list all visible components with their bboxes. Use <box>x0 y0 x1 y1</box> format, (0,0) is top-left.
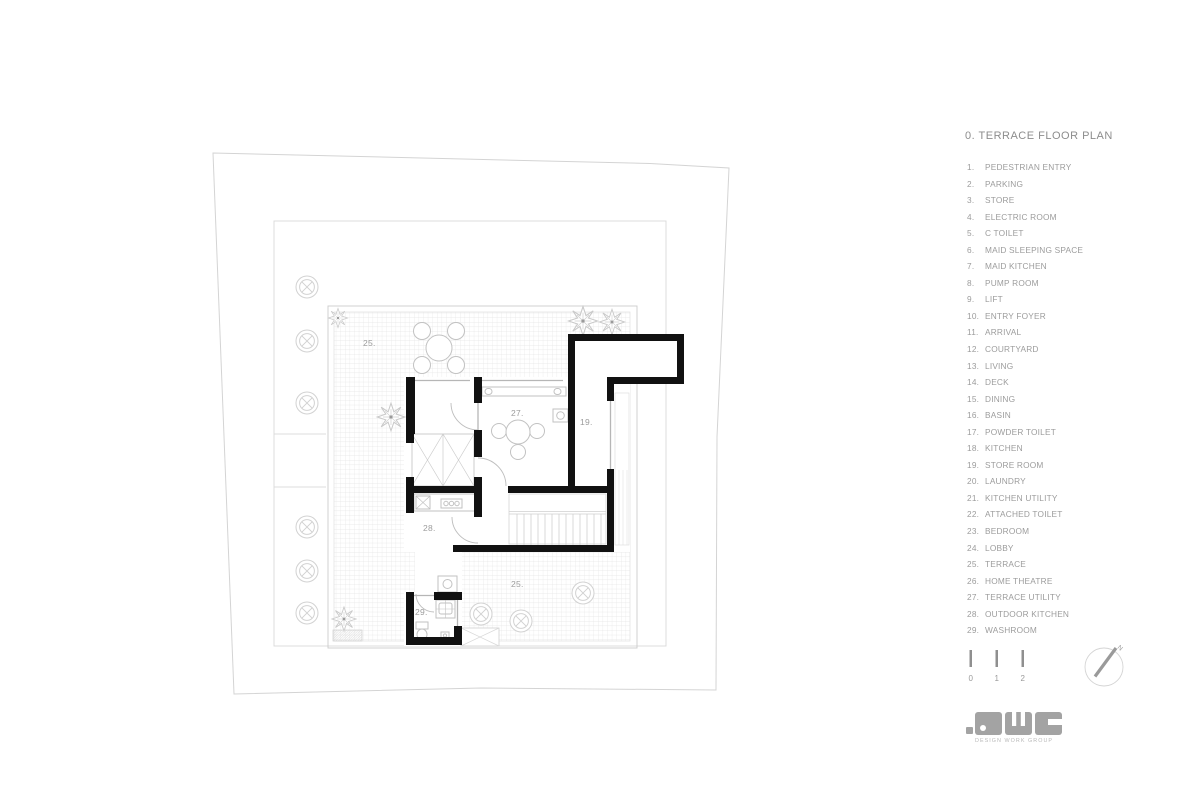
legend-item: 13.LIVING <box>967 361 1083 378</box>
legend-item: 14.DECK <box>967 377 1083 394</box>
north-label: N <box>1116 644 1124 653</box>
label-terrace-utility: 27. <box>511 408 524 418</box>
scale-tick-2: 2 <box>1020 674 1025 683</box>
legend-item: 12.COURTYARD <box>967 344 1083 361</box>
legend-item: 26.HOME THEATRE <box>967 576 1083 593</box>
legend-item: 28.OUTDOOR KITCHEN <box>967 609 1083 626</box>
legend-item: 22.ATTACHED TOILET <box>967 509 1083 526</box>
legend-item: 24.LOBBY <box>967 543 1083 560</box>
north-arrow-icon: N <box>1085 644 1124 686</box>
vent-grille <box>333 630 362 641</box>
legend-item: 2.PARKING <box>967 179 1083 196</box>
legend-item: 7.MAID KITCHEN <box>967 261 1083 278</box>
logo-subtitle: DESIGN WORK GROUP <box>975 738 1053 744</box>
page-title: 0. TERRACE FLOOR PLAN <box>965 130 1113 142</box>
legend-item: 5.C TOILET <box>967 228 1083 245</box>
legend-item: 19.STORE ROOM <box>967 460 1083 477</box>
legend-item: 20.LAUNDRY <box>967 476 1083 493</box>
legend-item: 11.ARRIVAL <box>967 327 1083 344</box>
drawing-sheet: 25. 27. 19. 28. 25. 29. 0 1 2 N DESIGN W… <box>0 0 1200 800</box>
legend-item: 1.PEDESTRIAN ENTRY <box>967 162 1083 179</box>
legend-item: 8.PUMP ROOM <box>967 278 1083 295</box>
legend-item: 21.KITCHEN UTILITY <box>967 493 1083 510</box>
legend-item: 3.STORE <box>967 195 1083 212</box>
legend-item: 27.TERRACE UTILITY <box>967 592 1083 609</box>
scale-bar: 0 1 2 <box>968 650 1025 683</box>
legend-item: 25.TERRACE <box>967 559 1083 576</box>
legend-item: 10.ENTRY FOYER <box>967 311 1083 328</box>
label-store-room: 19. <box>580 417 593 427</box>
legend-item: 6.MAID SLEEPING SPACE <box>967 245 1083 262</box>
legend-item: 9.LIFT <box>967 294 1083 311</box>
legend-item: 4.ELECTRIC ROOM <box>967 212 1083 229</box>
scale-tick-0: 0 <box>968 674 973 683</box>
legend-item: 15.DINING <box>967 394 1083 411</box>
legend-list: 1.PEDESTRIAN ENTRY 2.PARKING 3.STORE 4.E… <box>967 162 1083 642</box>
scale-tick-1: 1 <box>994 674 999 683</box>
legend-item: 29.WASHROOM <box>967 625 1083 642</box>
floor-grating <box>461 628 499 646</box>
label-outdoor-kitchen: 28. <box>423 523 436 533</box>
legend-item: 23.BEDROOM <box>967 526 1083 543</box>
pergola-box <box>412 434 474 486</box>
legend-item: 18.KITCHEN <box>967 443 1083 460</box>
label-terrace-top: 25. <box>363 338 376 348</box>
label-washroom: 29. <box>415 607 428 617</box>
legend-item: 16.BASIN <box>967 410 1083 427</box>
dwg-logo: DESIGN WORK GROUP <box>966 712 1062 744</box>
legend-item: 17.POWDER TOILET <box>967 427 1083 444</box>
label-terrace-bottom: 25. <box>511 579 524 589</box>
outdoor-kitchen-counter <box>414 494 476 511</box>
